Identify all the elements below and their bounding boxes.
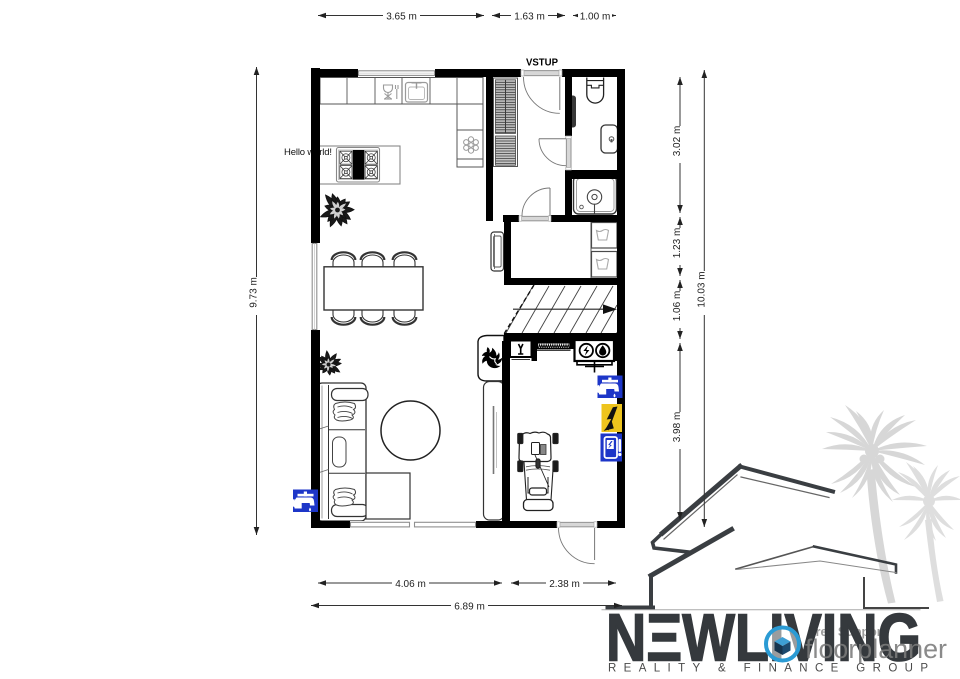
svg-text:Hello world!: Hello world! [284, 147, 332, 158]
svg-text:2.38 m: 2.38 m [549, 579, 580, 590]
svg-text:4.06 m: 4.06 m [395, 579, 426, 590]
svg-text:REALITY & FINANCE GROUP: REALITY & FINANCE GROUP [608, 663, 928, 675]
svg-text:9.73 m: 9.73 m [249, 277, 260, 308]
svg-text:1.23 m: 1.23 m [672, 228, 683, 259]
svg-text:1.00 m: 1.00 m [580, 12, 611, 23]
svg-text:10.03 m: 10.03 m [696, 271, 707, 307]
svg-text:floorplanner: floorplanner [805, 634, 947, 664]
svg-text:1.06 m: 1.06 m [672, 291, 683, 322]
svg-text:6.89 m: 6.89 m [454, 602, 485, 613]
svg-text:3.98 m: 3.98 m [672, 412, 683, 443]
svg-text:VSTUP: VSTUP [526, 57, 558, 69]
svg-text:3.65 m: 3.65 m [386, 12, 417, 23]
svg-text:3.02 m: 3.02 m [672, 126, 683, 157]
svg-text:1.63 m: 1.63 m [514, 12, 545, 23]
